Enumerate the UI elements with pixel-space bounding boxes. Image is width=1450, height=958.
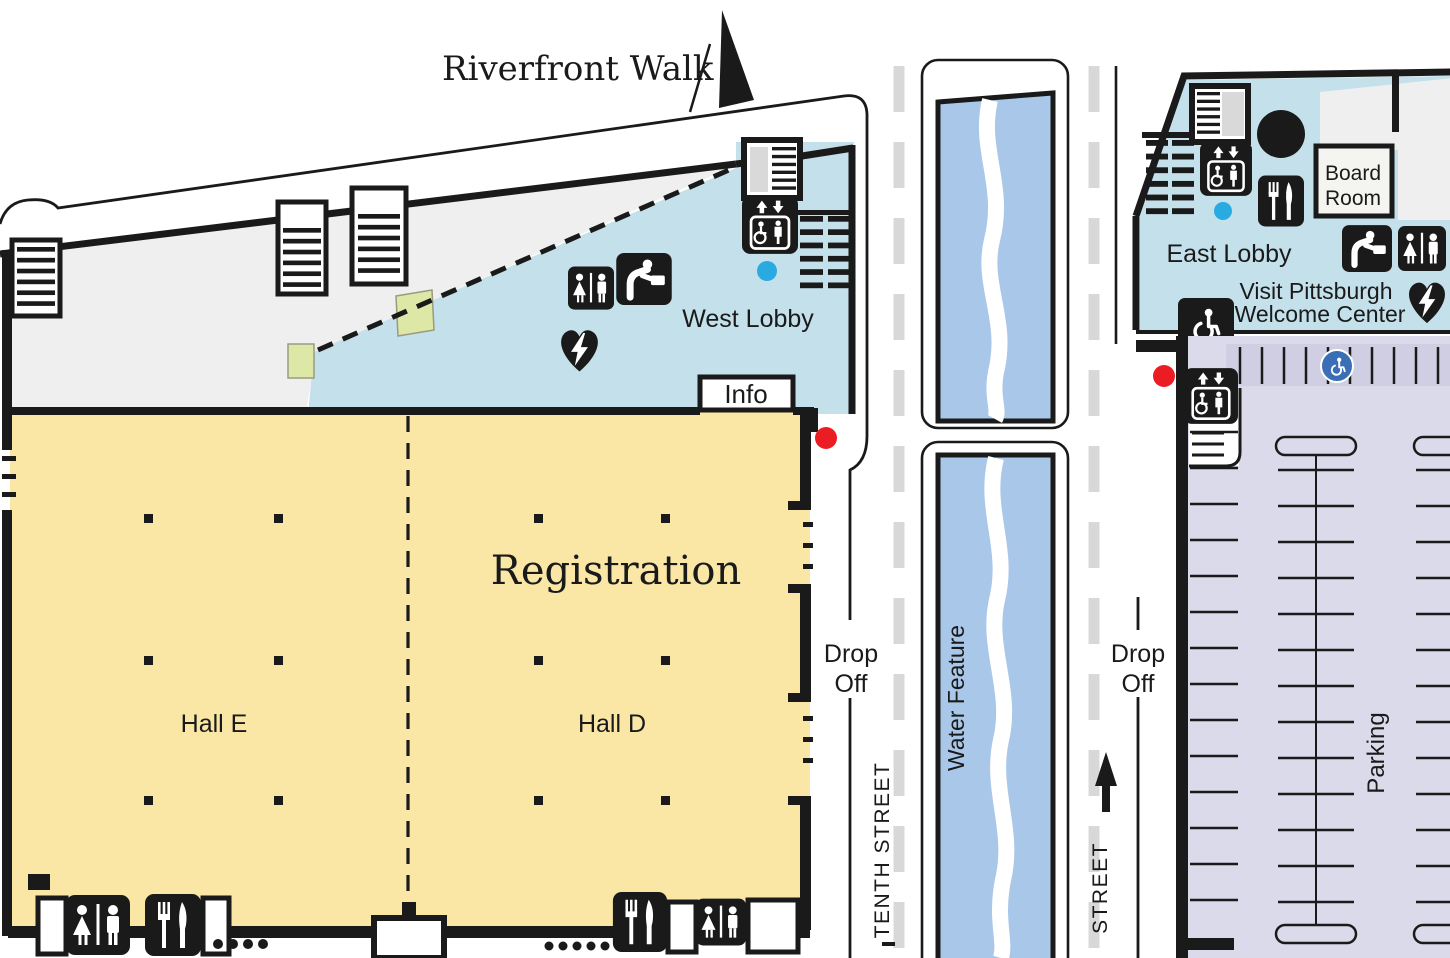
riverfront-walk-label: Riverfront Walk bbox=[442, 49, 714, 89]
escalator-icon bbox=[1192, 86, 1248, 142]
svg-text:Welcome Center: Welcome Center bbox=[1235, 301, 1406, 327]
tenth-street-label: TENTH STREET bbox=[871, 762, 894, 939]
west-lobby-label: West Lobby bbox=[682, 305, 814, 333]
accessible-parking-icon bbox=[1321, 350, 1353, 382]
stairs-icon bbox=[278, 202, 326, 294]
green-room-lower bbox=[288, 344, 314, 378]
drinking-fountain-icon bbox=[1342, 225, 1392, 272]
parking-left-wall bbox=[1176, 336, 1188, 958]
stairs-icon bbox=[352, 188, 406, 284]
elevator-icon bbox=[742, 196, 798, 254]
escalator-icon bbox=[744, 140, 800, 198]
food-icon bbox=[1258, 176, 1304, 227]
entrance-marker-dot bbox=[1153, 365, 1175, 387]
drop-off-label: Drop bbox=[1111, 640, 1165, 668]
exhibit-halls-area bbox=[10, 412, 810, 936]
restroom-icon bbox=[66, 895, 130, 955]
restroom-icon bbox=[568, 266, 614, 309]
registration-label: Registration bbox=[491, 548, 741, 594]
atm-icon: $ bbox=[1257, 110, 1305, 158]
svg-text:$: $ bbox=[1271, 113, 1291, 154]
riverfront-walk: Riverfront Walk bbox=[442, 10, 754, 112]
hall-e-label: Hall E bbox=[181, 710, 248, 738]
svg-text:Off: Off bbox=[1122, 670, 1155, 698]
info-booth: Info bbox=[700, 377, 793, 410]
stairs-icon bbox=[12, 240, 60, 316]
floor-plan-svg: Info West Lobby Registrat bbox=[0, 0, 1450, 958]
elevator-marker-dot bbox=[1214, 202, 1232, 220]
elevator-marker-dot bbox=[757, 261, 777, 281]
convention-center-floor-plan: Info West Lobby Registrat bbox=[0, 0, 1450, 958]
entrance-marker-dot bbox=[815, 427, 837, 449]
parking-garage: Parking bbox=[1176, 336, 1450, 958]
drinking-fountain-icon bbox=[616, 253, 671, 305]
water-feature: Water Feature bbox=[922, 60, 1068, 958]
svg-text:Room: Room bbox=[1325, 187, 1381, 210]
east-lobby-label: East Lobby bbox=[1166, 240, 1292, 268]
hall-right-wall bbox=[800, 410, 811, 510]
east-street-label: STREET bbox=[1089, 842, 1112, 934]
west-building: Info West Lobby Registrat bbox=[0, 96, 867, 958]
hall-d-label: Hall D bbox=[578, 710, 646, 738]
drop-off-label: Drop bbox=[824, 640, 878, 668]
elevator-icon bbox=[1200, 142, 1252, 196]
elevator-icon bbox=[1184, 368, 1238, 424]
restroom-icon bbox=[1398, 226, 1446, 271]
info-label: Info bbox=[724, 379, 767, 409]
north-arrow-icon bbox=[719, 10, 754, 108]
food-icon bbox=[145, 894, 201, 956]
restroom-icon bbox=[696, 899, 746, 946]
svg-text:Off: Off bbox=[835, 670, 868, 698]
food-icon bbox=[613, 892, 667, 952]
board-room: Board Room bbox=[1316, 146, 1392, 216]
board-room-label: Board bbox=[1325, 162, 1381, 185]
parking-label: Parking bbox=[1363, 712, 1390, 793]
water-feature-label: Water Feature bbox=[943, 625, 969, 771]
